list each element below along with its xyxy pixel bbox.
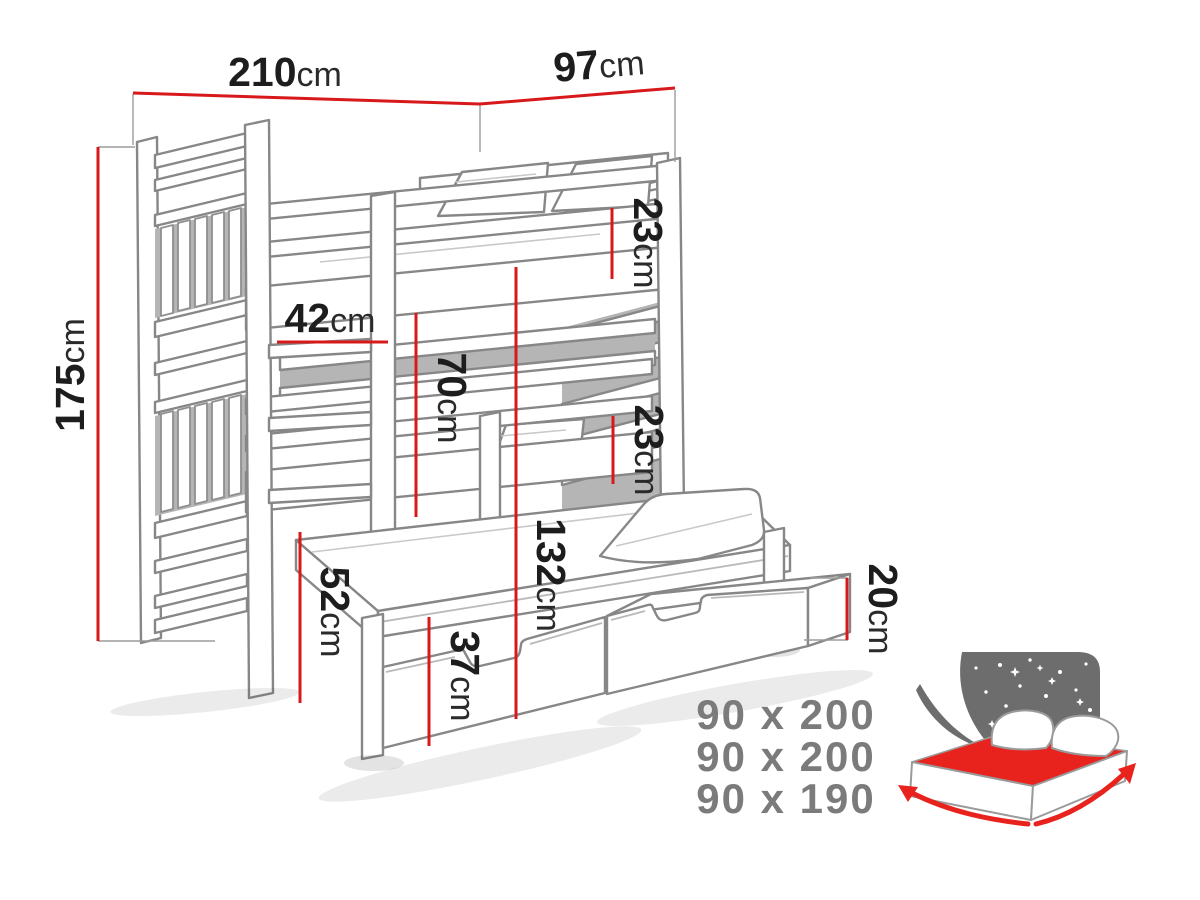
dim-ladder-unit: cm bbox=[330, 302, 375, 340]
dim-drawer-front-label: 37cm bbox=[442, 631, 488, 722]
logo-pillow-right bbox=[1052, 716, 1119, 756]
dim-height-label: 175cm bbox=[47, 318, 93, 432]
dim-middle-guard-value: 23 bbox=[626, 405, 672, 451]
dim-drawer-front-value: 37 bbox=[442, 631, 488, 677]
dim-drawer-side-label: 20cm bbox=[860, 564, 906, 655]
middle-guard-post bbox=[480, 412, 500, 528]
dim-clearance-value: 70 bbox=[429, 353, 475, 399]
bed-size-trundle: 90 x 190 bbox=[696, 775, 876, 822]
dim-width-value: 210 bbox=[228, 49, 296, 95]
dim-drawer-front-unit: cm bbox=[443, 676, 481, 721]
dim-ladder-value: 42 bbox=[285, 295, 331, 341]
dim-drawer-side-unit: cm bbox=[861, 609, 899, 654]
dim-upper-guard-unit: cm bbox=[626, 243, 664, 288]
drawer-left bbox=[383, 617, 605, 748]
bed-size-top: 90 x 200 bbox=[696, 691, 876, 738]
dim-width-line bbox=[133, 93, 480, 104]
dim-trundle-height-value: 52 bbox=[312, 567, 358, 613]
logo-pillow-left bbox=[992, 710, 1054, 749]
dim-clearance-unit: cm bbox=[430, 398, 468, 443]
trundle-post-left bbox=[362, 614, 383, 759]
bed-size-list: 90 x 200 90 x 200 90 x 190 bbox=[696, 691, 876, 822]
dim-upper-guard-value: 23 bbox=[625, 198, 671, 244]
dim-trundle-height-unit: cm bbox=[313, 612, 351, 657]
dim-middle-height-label: 132cm bbox=[528, 518, 574, 632]
dim-ladder-label: 42cm bbox=[285, 295, 376, 341]
dim-middle-guard-label: 23cm bbox=[626, 405, 672, 496]
dim-middle-height-value: 132 bbox=[528, 518, 574, 586]
headboard bbox=[137, 133, 247, 643]
dim-trundle-height-label: 52cm bbox=[312, 567, 358, 658]
head-front-post bbox=[245, 120, 273, 698]
diagram-canvas: 210cm 97cm 175cm 23cm 42cm 70cm 23cm 132… bbox=[0, 0, 1200, 900]
bed-size-middle: 90 x 200 bbox=[696, 733, 876, 780]
dim-upper-guard-label: 23cm bbox=[625, 198, 671, 289]
dim-width-unit: cm bbox=[297, 56, 342, 94]
dim-depth-line bbox=[480, 88, 675, 104]
dim-middle-guard-unit: cm bbox=[627, 450, 665, 495]
brand-logo bbox=[898, 652, 1136, 824]
dim-height-unit: cm bbox=[54, 318, 92, 363]
dim-drawer-side-value: 20 bbox=[860, 564, 906, 610]
dim-height-value: 175 bbox=[47, 363, 93, 431]
dim-depth-label: 97cm bbox=[551, 37, 646, 91]
dim-clearance-label: 70cm bbox=[429, 353, 475, 444]
dim-middle-height-unit: cm bbox=[529, 587, 567, 632]
bed-diagram: 210cm 97cm 175cm 23cm 42cm 70cm 23cm 132… bbox=[0, 0, 1200, 900]
dim-depth-value: 97 bbox=[551, 41, 600, 91]
dim-width-label: 210cm bbox=[228, 49, 342, 95]
dim-depth-unit: cm bbox=[598, 44, 646, 86]
